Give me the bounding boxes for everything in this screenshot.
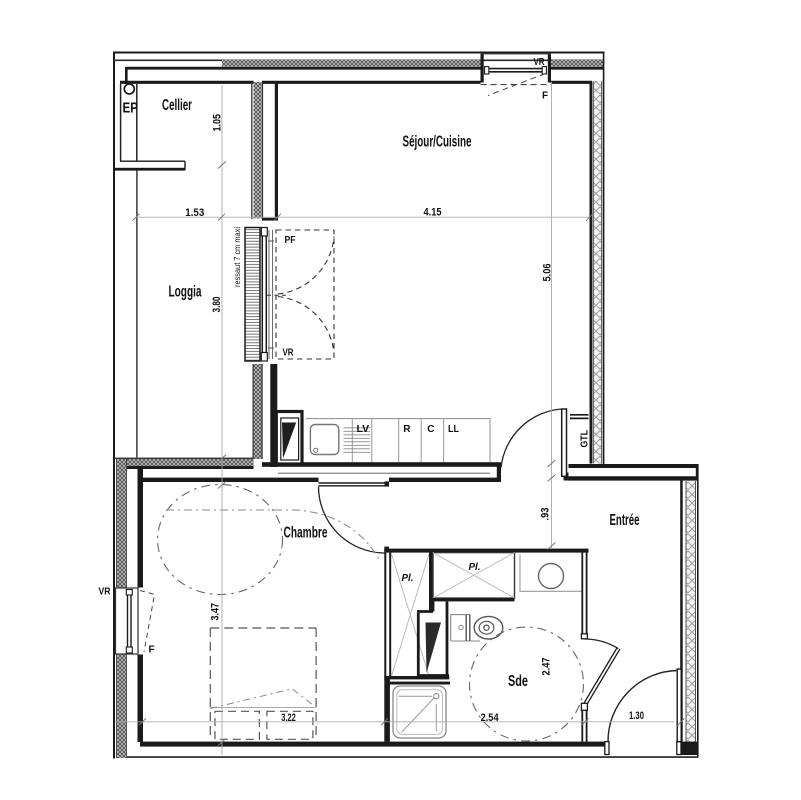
svg-text:LL: LL	[448, 424, 459, 435]
svg-text:ressaut 7 cm maxi: ressaut 7 cm maxi	[233, 227, 242, 287]
svg-text:Pl.: Pl.	[469, 561, 481, 573]
svg-text:2.47: 2.47	[541, 658, 553, 676]
svg-text:Pl.: Pl.	[402, 572, 414, 584]
svg-text:3.47: 3.47	[210, 603, 222, 621]
svg-text:R: R	[403, 424, 411, 435]
svg-text:VR: VR	[99, 587, 112, 598]
svg-text:3.80: 3.80	[211, 297, 223, 313]
svg-text:Loggia: Loggia	[169, 284, 202, 301]
svg-text:F: F	[149, 645, 155, 656]
svg-text:Entrée: Entrée	[610, 512, 640, 529]
svg-text:C: C	[427, 424, 434, 435]
svg-text:GTL: GTL	[579, 430, 591, 448]
svg-text:PF: PF	[285, 235, 296, 246]
svg-text:1.05: 1.05	[212, 114, 224, 132]
svg-text:Chambre: Chambre	[284, 525, 328, 542]
svg-text:1.53: 1.53	[185, 207, 204, 219]
svg-text:Cellier: Cellier	[162, 97, 192, 114]
svg-text:4.15: 4.15	[424, 206, 442, 218]
svg-text:Séjour/Cuisine: Séjour/Cuisine	[403, 134, 472, 151]
svg-text:2.54: 2.54	[481, 712, 500, 724]
svg-text:3.22: 3.22	[281, 712, 296, 724]
svg-text:5.06: 5.06	[542, 264, 554, 282]
svg-text:Sde: Sde	[508, 673, 528, 690]
svg-text:VR: VR	[534, 57, 546, 68]
svg-text:VR: VR	[283, 348, 295, 359]
svg-text:LV: LV	[357, 424, 370, 435]
svg-text:1.30: 1.30	[629, 710, 644, 722]
svg-text:.93: .93	[540, 508, 552, 521]
svg-text:F: F	[542, 91, 548, 102]
svg-text:EP: EP	[123, 100, 139, 117]
